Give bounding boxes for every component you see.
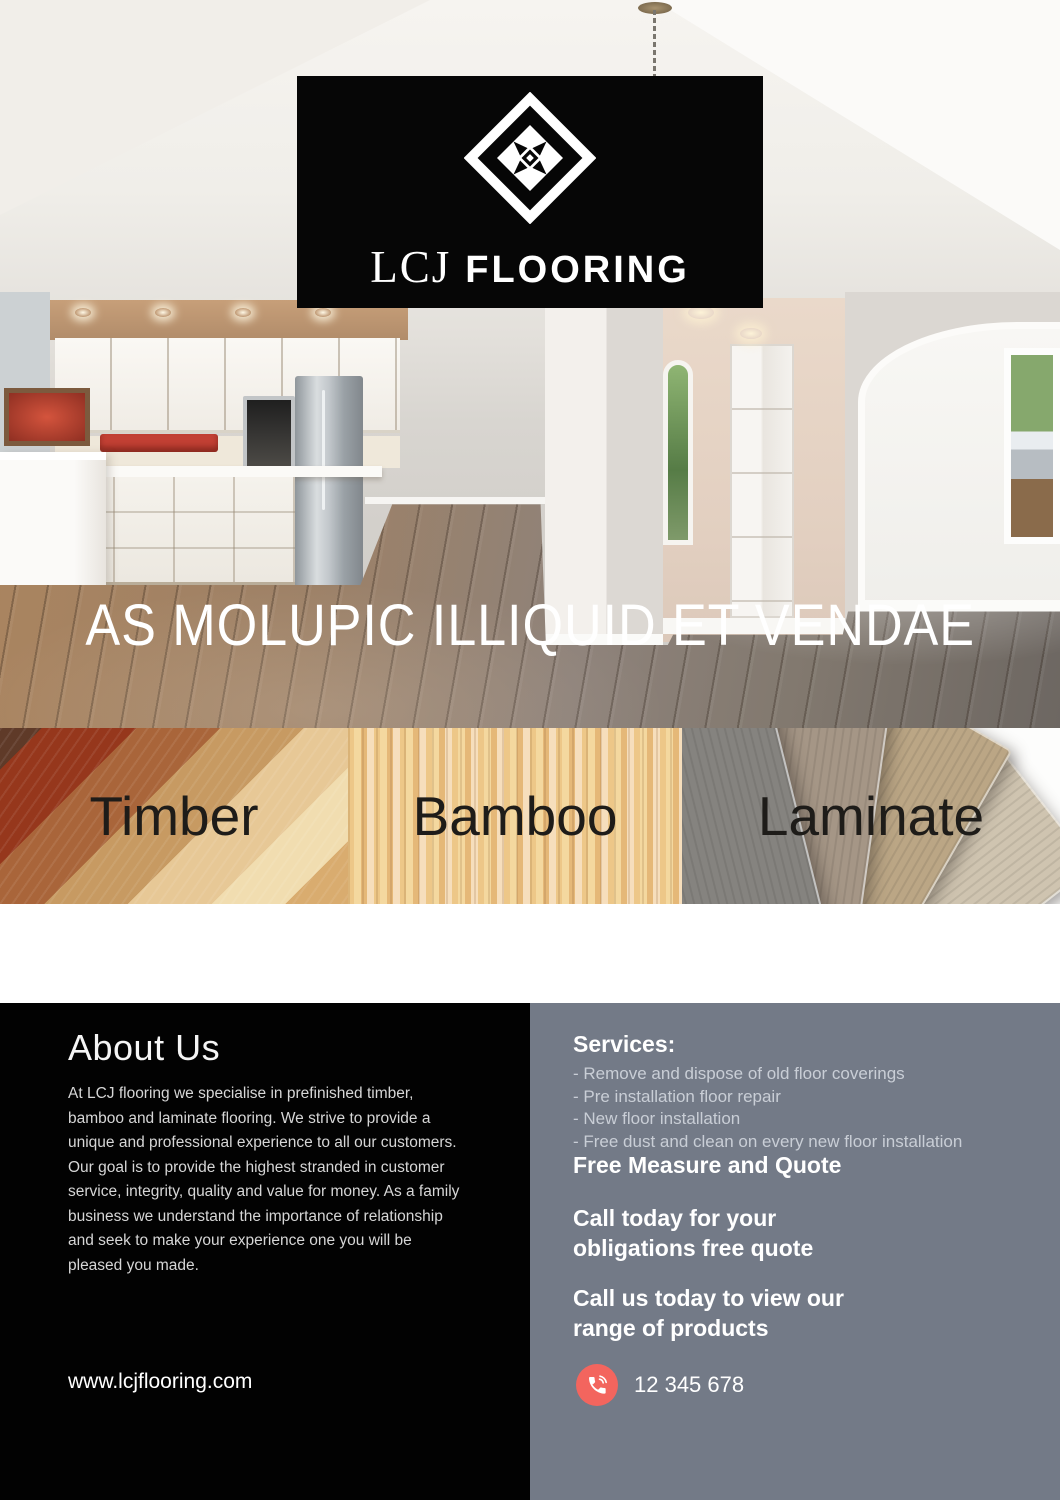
logo-wordmark: LCJ FLOORING bbox=[370, 241, 690, 293]
hero-tagline: AS MOLUPIC ILLIQUID ET VENDAE bbox=[0, 592, 1060, 659]
logo-text-flooring: FLOORING bbox=[465, 249, 690, 292]
logo-text-lcj: LCJ bbox=[370, 241, 451, 293]
kitchen-island bbox=[0, 452, 106, 585]
hallway-door bbox=[730, 344, 794, 618]
ceiling-light bbox=[155, 308, 171, 317]
hallway-window bbox=[663, 360, 693, 545]
chandelier-chain bbox=[653, 10, 656, 76]
about-body: At LCJ flooring we specialise in prefini… bbox=[68, 1082, 480, 1278]
phone-icon bbox=[576, 1364, 618, 1406]
website-url: www.lcjflooring.com bbox=[68, 1370, 252, 1394]
services-heading: Services: bbox=[573, 1031, 675, 1058]
category-laminate-image: Laminate bbox=[682, 728, 1060, 904]
ceiling-light bbox=[315, 308, 331, 317]
hero-photo: LCJ FLOORING AS MOLUPIC ILLIQUID ET VEND… bbox=[0, 0, 1060, 728]
category-laminate-label: Laminate bbox=[758, 784, 984, 848]
services-list: - Remove and dispose of old floor coveri… bbox=[573, 1063, 962, 1153]
counter-decor bbox=[100, 434, 218, 452]
category-timber-label: Timber bbox=[89, 784, 258, 848]
services-panel: Services: - Remove and dispose of old fl… bbox=[530, 1003, 1060, 1500]
dome-light bbox=[740, 328, 762, 339]
phone-row: 12 345 678 bbox=[576, 1364, 744, 1406]
call-view-text: Call us today to view our range of produ… bbox=[573, 1283, 844, 1343]
refrigerator-handle bbox=[322, 390, 325, 510]
call-today-text: Call today for your obligations free quo… bbox=[573, 1203, 813, 1263]
wall-oven bbox=[243, 396, 295, 470]
refrigerator bbox=[295, 376, 363, 602]
flyer-page: LCJ FLOORING AS MOLUPIC ILLIQUID ET VEND… bbox=[0, 0, 1060, 1500]
about-panel: About Us At LCJ flooring we specialise i… bbox=[0, 1003, 530, 1500]
logo-box: LCJ FLOORING bbox=[297, 76, 763, 308]
service-item: - Pre installation floor repair bbox=[573, 1086, 962, 1109]
ceiling-light bbox=[235, 308, 251, 317]
service-item: - Free dust and clean on every new floor… bbox=[573, 1131, 962, 1154]
living-room-window bbox=[1004, 348, 1060, 544]
category-bamboo-image: Bamboo bbox=[348, 728, 682, 904]
free-measure-text: Free Measure and Quote bbox=[573, 1152, 841, 1179]
about-heading: About Us bbox=[68, 1027, 220, 1069]
category-timber-image: Timber bbox=[0, 728, 348, 904]
category-bamboo-label: Bamboo bbox=[413, 784, 618, 848]
service-item: - New floor installation bbox=[573, 1108, 962, 1131]
counter-artwork bbox=[4, 388, 90, 446]
phone-number: 12 345 678 bbox=[634, 1372, 744, 1398]
far-wall-baseboard bbox=[365, 497, 545, 504]
service-item: - Remove and dispose of old floor coveri… bbox=[573, 1063, 962, 1086]
diamond-logo-icon bbox=[464, 92, 596, 229]
ceiling-light bbox=[75, 308, 91, 317]
